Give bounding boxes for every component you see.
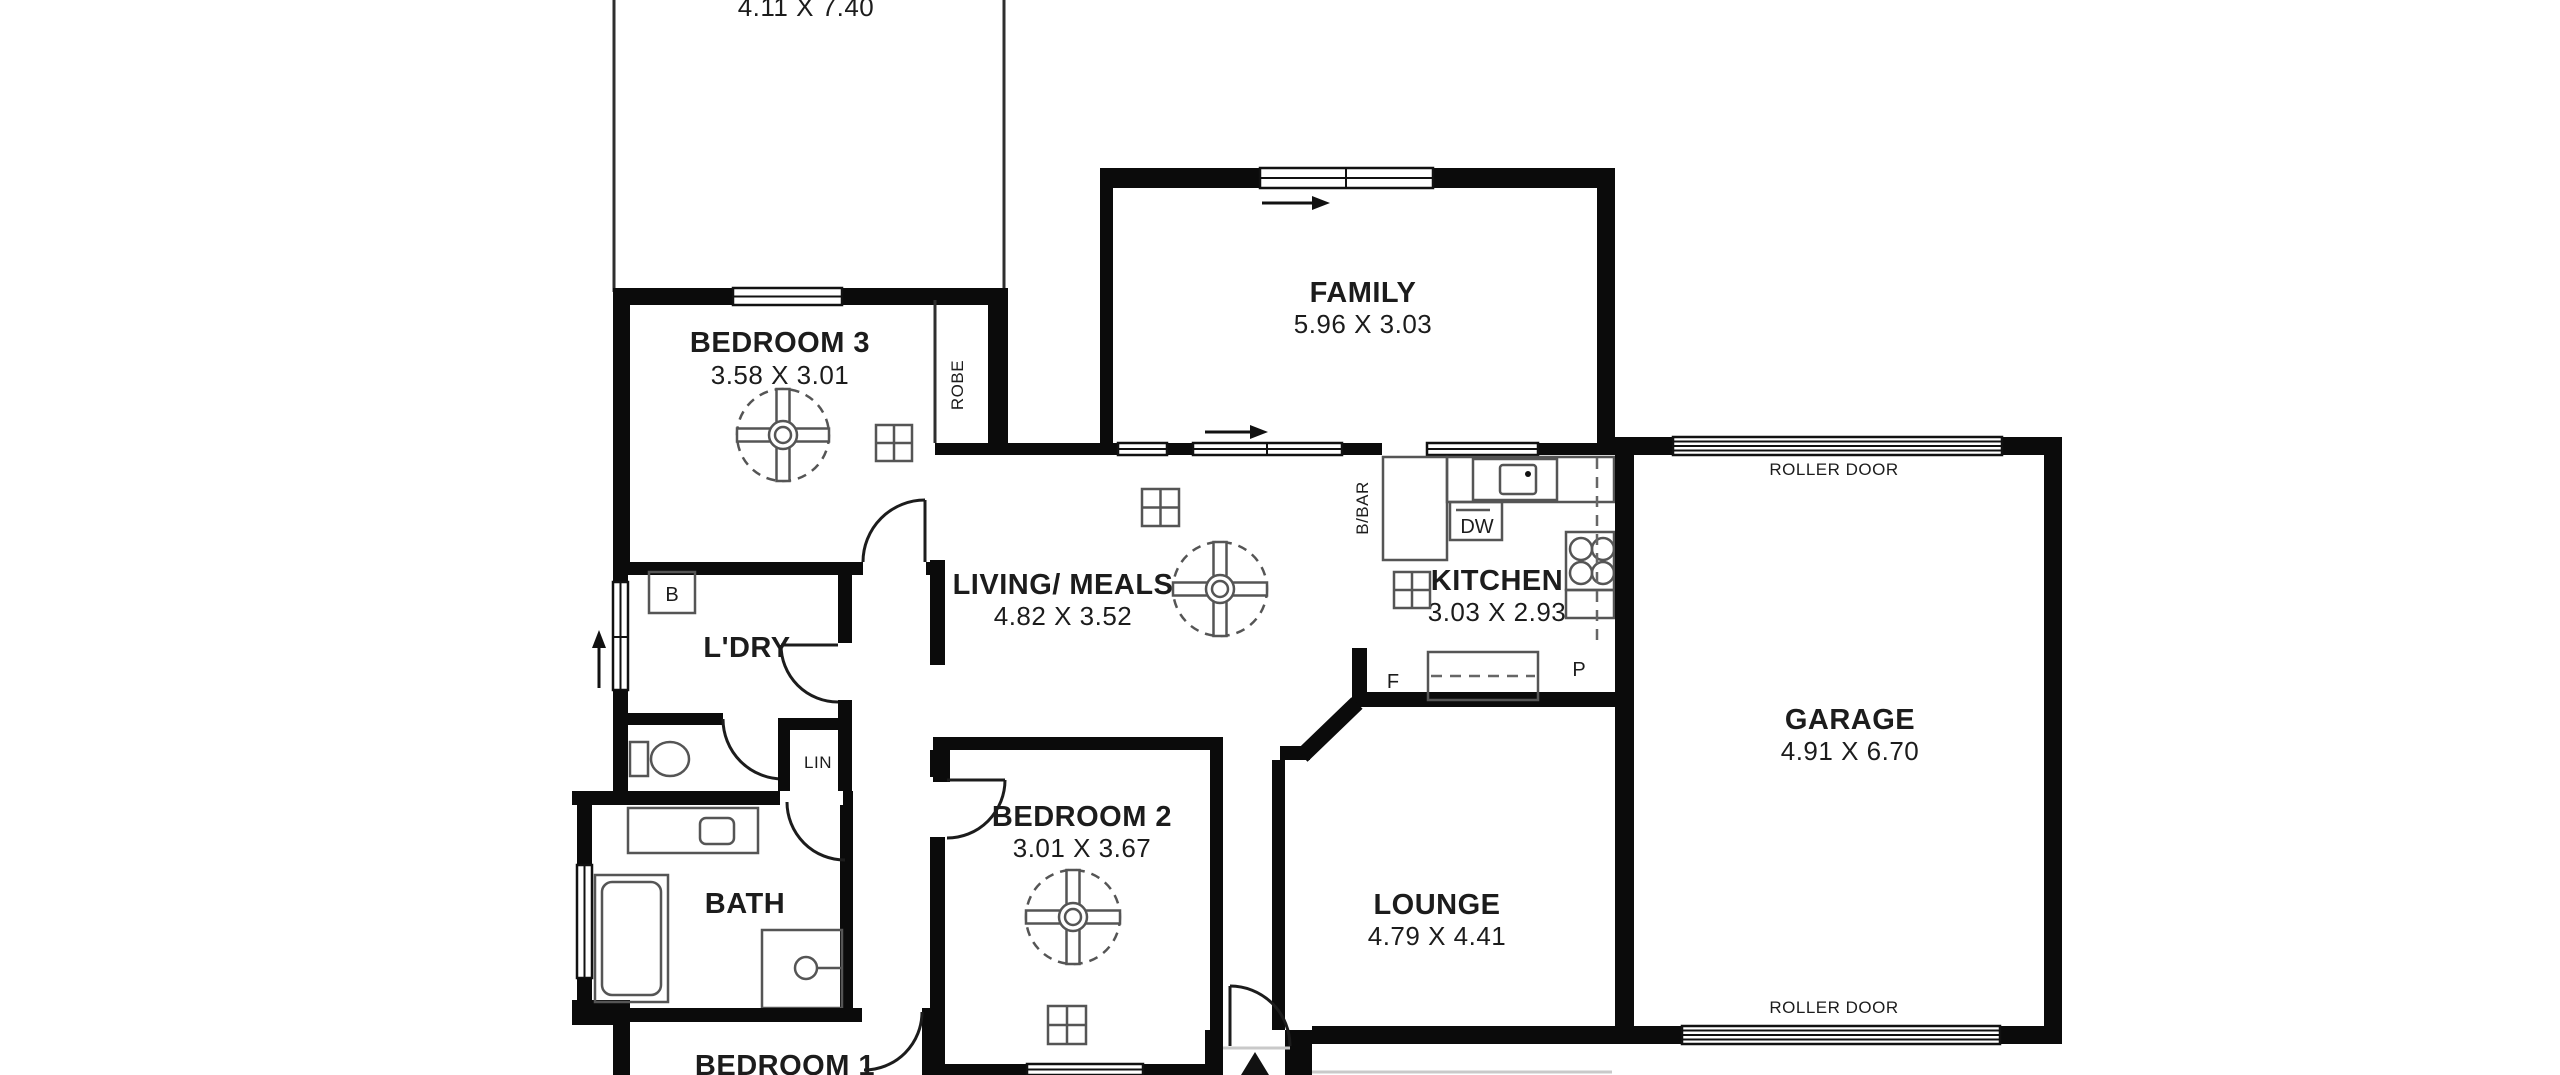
dishwasher-icon: DW xyxy=(1450,502,1502,540)
roller-door-top: ROLLER DOOR xyxy=(1673,437,2002,479)
roller-door-bottom: ROLLER DOOR xyxy=(1682,998,2000,1044)
room-label-family: FAMILY xyxy=(1310,277,1417,309)
toilet-icon xyxy=(630,742,689,776)
ceiling-fan-icon xyxy=(737,389,829,481)
room-garage: ROLLER DOOR ROLLER DOOR GARAGE 4.91 X 6.… xyxy=(1615,437,2062,1044)
room-lounge: LOUNGE 4.79 X 4.41 xyxy=(1205,703,1634,1075)
room-label-kitchen: KITCHEN xyxy=(1431,565,1563,597)
window-icon xyxy=(1048,1006,1086,1044)
floor-plan-page: 4.11 X 7.40 BEDROOM 3 3.58 X 3.01 ROBE xyxy=(0,0,2560,1075)
room-dims-living: 4.82 X 3.52 xyxy=(994,601,1133,631)
window-family-bottom-mid xyxy=(1193,443,1342,455)
window-kitchen-top xyxy=(1427,443,1538,455)
robe-label: ROBE xyxy=(948,360,967,410)
room-label-living: LIVING/ MEALS xyxy=(953,569,1174,601)
room-dims-carport: 4.11 X 7.40 xyxy=(738,0,875,22)
window-bath xyxy=(577,865,592,978)
entry-arrow-icon xyxy=(592,630,606,688)
room-bath: BATH xyxy=(572,802,853,1025)
room-bedroom3: BEDROOM 3 3.58 X 3.01 ROBE xyxy=(613,288,1008,575)
room-laundry: B L'DRY LIN xyxy=(572,572,853,805)
ceiling-fan-icon xyxy=(1173,542,1267,636)
bathtub-icon xyxy=(595,875,668,1002)
room-dims-lounge: 4.79 X 4.41 xyxy=(1368,921,1507,951)
roller-door-top-label: ROLLER DOOR xyxy=(1769,460,1898,479)
room-label-bedroom2: BEDROOM 2 xyxy=(992,801,1172,833)
room-label-lounge: LOUNGE xyxy=(1373,889,1500,921)
sink-icon xyxy=(1447,457,1614,502)
room-label-bedroom3: BEDROOM 3 xyxy=(690,327,870,359)
fridge-label: F xyxy=(1387,671,1399,693)
window-bedroom2-bottom xyxy=(1027,1064,1143,1075)
room-label-garage: GARAGE xyxy=(1785,704,1915,736)
ceiling-fan-icon xyxy=(1026,870,1120,964)
pantry-label: P xyxy=(1572,659,1585,681)
window-laundry xyxy=(613,582,628,690)
window-family-bottom-left xyxy=(1118,443,1167,455)
dishwasher-label: DW xyxy=(1460,516,1493,538)
roller-door-bottom-label: ROLLER DOOR xyxy=(1769,998,1898,1017)
window-icon xyxy=(1142,489,1179,526)
room-dims-kitchen: 3.03 X 2.93 xyxy=(1428,597,1567,627)
room-bedroom1: BEDROOM 1 xyxy=(613,1008,940,1075)
room-kitchen: B/BAR DW KITCHEN 3.03 X 2.93 xyxy=(1352,457,1618,707)
window-icon xyxy=(876,425,912,461)
window-family-top xyxy=(1260,168,1433,188)
linen-label: LIN xyxy=(804,753,832,772)
room-dims-bedroom2: 3.01 X 3.67 xyxy=(1013,833,1152,863)
breakfast-bar-label: B/BAR xyxy=(1353,481,1372,535)
trough-label: B xyxy=(665,584,678,606)
room-label-bath: BATH xyxy=(705,888,785,920)
room-dims-family: 5.96 X 3.03 xyxy=(1294,309,1433,339)
floor-plan-svg: 4.11 X 7.40 BEDROOM 3 3.58 X 3.01 ROBE xyxy=(0,0,2560,1075)
window-carport xyxy=(733,288,842,305)
room-dims-bedroom3: 3.58 X 3.01 xyxy=(711,360,850,390)
shower-icon xyxy=(762,930,842,1008)
room-family: FAMILY 5.96 X 3.03 xyxy=(935,168,1615,455)
window-icon xyxy=(1394,572,1430,608)
cooktop-icon xyxy=(1566,532,1614,618)
entry-marker-icon xyxy=(1241,1052,1269,1075)
laundry-trough: B xyxy=(649,572,695,613)
room-label-bedroom1: BEDROOM 1 xyxy=(695,1050,875,1075)
room-dims-garage: 4.91 X 6.70 xyxy=(1781,736,1920,766)
room-bedroom2: BEDROOM 2 3.01 X 3.67 xyxy=(930,737,1223,1075)
vanity-icon xyxy=(628,808,758,853)
breakfast-bar-counter: B/BAR xyxy=(1353,457,1447,560)
room-carport: 4.11 X 7.40 xyxy=(613,0,1005,305)
room-label-laundry: L'DRY xyxy=(703,632,790,664)
